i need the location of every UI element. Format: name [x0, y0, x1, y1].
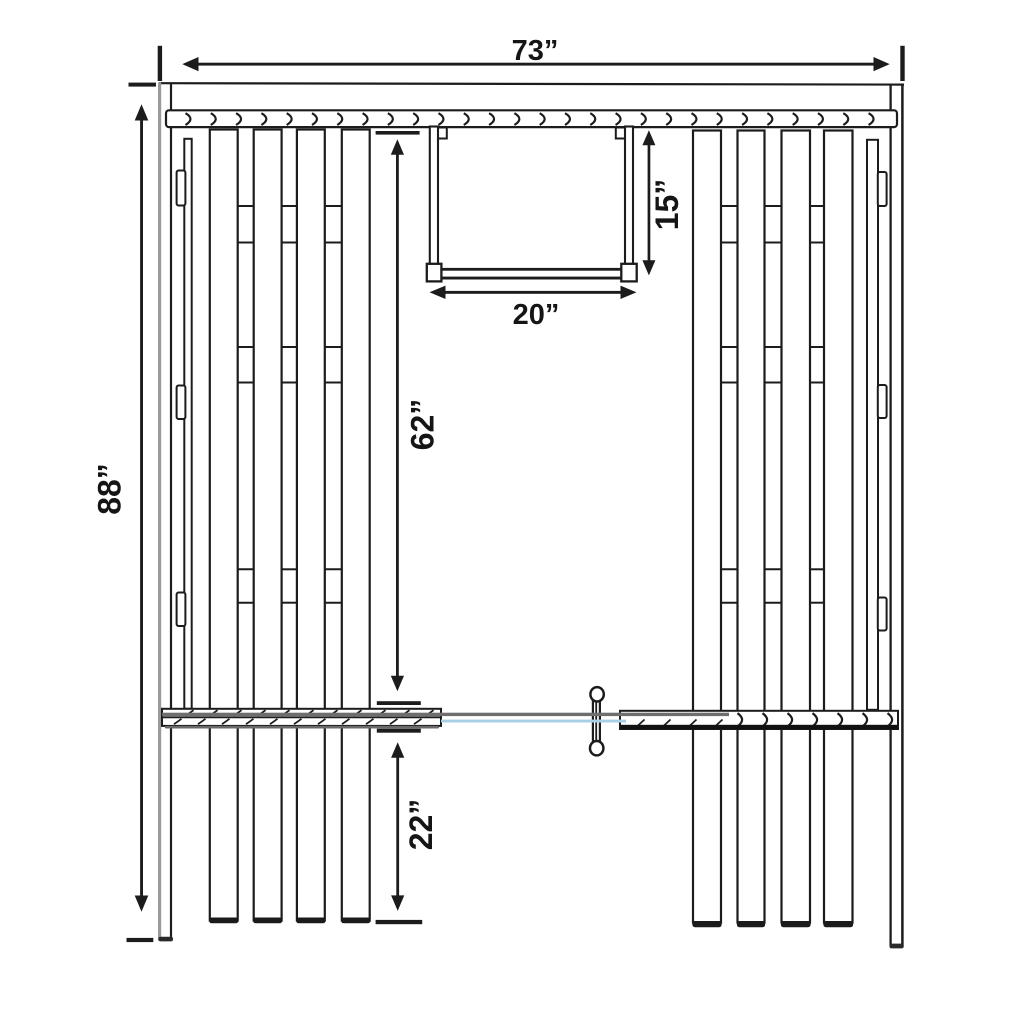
svg-text:62”: 62” [405, 399, 441, 451]
svg-text:88”: 88” [92, 463, 128, 515]
svg-text:73”: 73” [512, 35, 559, 67]
svg-text:20”: 20” [513, 299, 560, 331]
svg-text:15”: 15” [649, 179, 685, 231]
svg-text:22”: 22” [403, 799, 439, 851]
